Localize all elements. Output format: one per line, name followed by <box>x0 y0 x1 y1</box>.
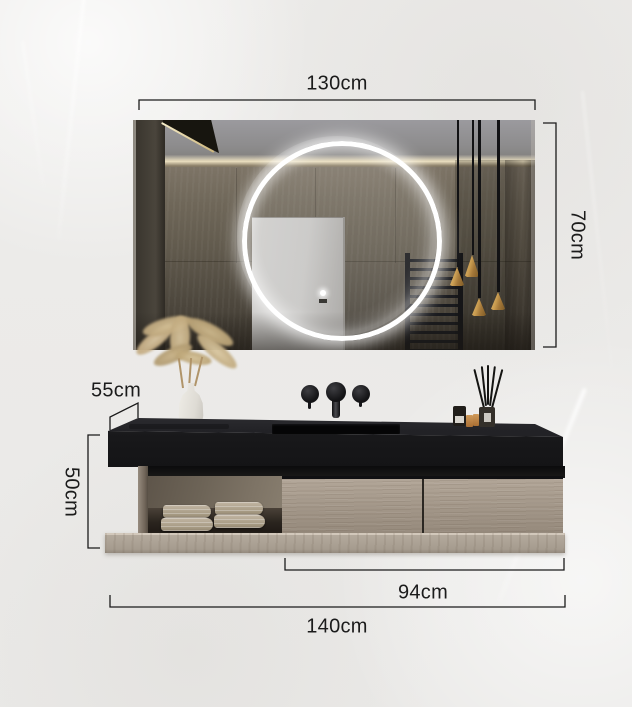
mirror-edge <box>531 120 535 350</box>
dim-overall-width-label: 140cm <box>306 616 368 639</box>
dim-overall-width-line <box>110 595 565 607</box>
dim-cabinet-height-label: 50cm <box>60 467 83 517</box>
dim-drawers-width-label: 94cm <box>398 582 448 605</box>
folded-towel <box>163 505 211 518</box>
folded-towel <box>214 515 265 528</box>
dim-mirror-height-line <box>543 123 556 347</box>
drawer-front-right <box>424 479 563 534</box>
pendant-cord <box>472 120 474 255</box>
marble-vein <box>57 0 86 239</box>
faucet-spout-plate <box>326 382 346 402</box>
dim-mirror-height-label: 70cm <box>566 210 589 260</box>
faucet-handle-right <box>352 385 370 403</box>
marble-vein <box>22 41 45 190</box>
counter-tray-groove <box>129 424 229 429</box>
diffuser-reed <box>487 365 489 405</box>
pendant-cord <box>457 120 459 267</box>
dim-mirror-width-line <box>139 100 535 110</box>
cosmetic-jar <box>453 406 466 426</box>
dimension-lines <box>0 0 632 707</box>
dim-counter-depth-label: 55cm <box>91 380 141 403</box>
faucet-handle-left <box>301 385 319 403</box>
integrated-sink <box>272 424 400 434</box>
dim-drawers-width-line <box>285 558 564 570</box>
diffuser-label <box>484 413 491 422</box>
pendant-cord <box>478 120 481 298</box>
amber-cup <box>466 415 473 427</box>
pendant-cord <box>497 120 500 292</box>
amber-cup <box>473 414 479 426</box>
dim-mirror-width-label: 130cm <box>306 73 368 96</box>
drawer-front-left <box>282 479 422 534</box>
jar-label <box>455 416 464 423</box>
drawer-cabinet <box>282 476 563 534</box>
folded-towel <box>161 518 213 531</box>
reed-diffuser-bottle <box>479 407 495 427</box>
cabinet-side-panel <box>138 466 148 534</box>
led-ring-light <box>242 141 442 341</box>
product-dimension-diagram: 130cm 70cm 55cm 50cm 94cm 140cm <box>0 0 632 707</box>
dim-cabinet-height-line <box>88 435 100 548</box>
folded-towel <box>215 502 263 515</box>
base-shelf <box>105 533 565 553</box>
